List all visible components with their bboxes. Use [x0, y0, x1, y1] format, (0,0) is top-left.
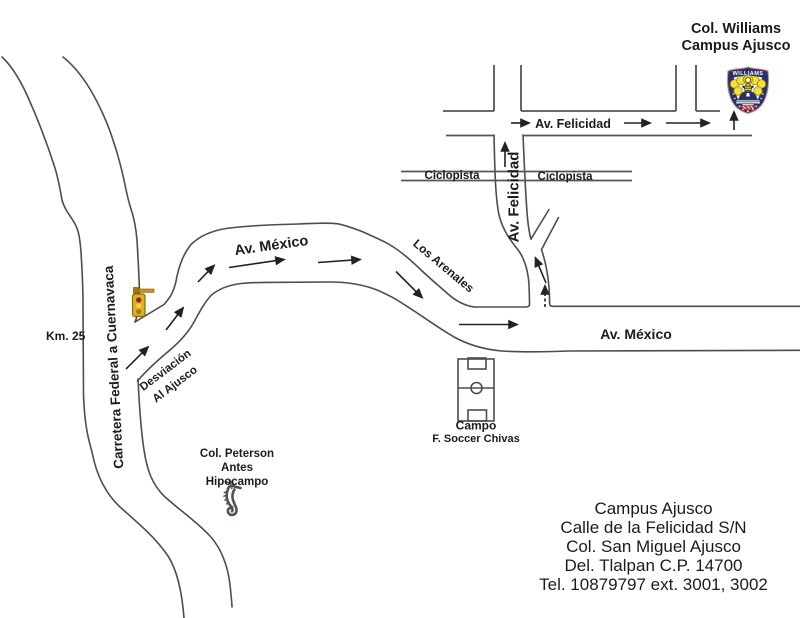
svg-text:Col. Williams: Col. Williams [691, 21, 781, 37]
svg-text:Campus Ajusco: Campus Ajusco [594, 499, 712, 518]
svg-text:Av. México: Av. México [600, 326, 672, 342]
svg-text:Campus Ajusco: Campus Ajusco [681, 38, 790, 54]
svg-text:Km. 25: Km. 25 [46, 329, 86, 343]
svg-text:Antes: Antes [221, 462, 253, 474]
svg-text:Col. San Miguel Ajusco: Col. San Miguel Ajusco [566, 537, 741, 556]
svg-text:Del. Tlalpan C.P. 14700: Del. Tlalpan C.P. 14700 [565, 556, 743, 575]
svg-text:Ciclopista: Ciclopista [425, 170, 481, 182]
svg-text:F. Soccer Chivas: F. Soccer Chivas [432, 433, 519, 445]
svg-text:Calle de la Felicidad S/N: Calle de la Felicidad S/N [560, 518, 746, 537]
svg-text:Av. Felicidad: Av. Felicidad [535, 117, 611, 131]
svg-text:Tel. 10879797 ext. 3001, 3002: Tel. 10879797 ext. 3001, 3002 [539, 575, 768, 594]
svg-text:Campo: Campo [456, 419, 497, 433]
svg-text:Av. Felicidad: Av. Felicidad [506, 152, 523, 243]
svg-text:Ciclopista: Ciclopista [538, 171, 594, 183]
svg-text:Hipocampo: Hipocampo [206, 476, 269, 488]
svg-text:Col. Peterson: Col. Peterson [200, 448, 274, 460]
